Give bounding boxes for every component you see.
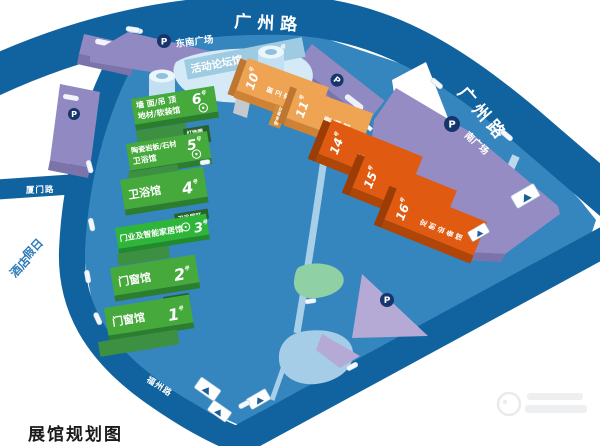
map-title: 展馆规划图 (28, 424, 123, 445)
parking-icon: P (444, 116, 460, 132)
road-label-guangzhou-top: 广州路 (234, 11, 304, 36)
site-map: 广州路 广州路 厦门路 福州路 假日 酒店 P P 东南广场 (0, 0, 600, 446)
svg-text:P: P (384, 296, 391, 306)
svg-text:P: P (448, 120, 455, 131)
parking-icon: P (157, 34, 171, 48)
svg-text:P: P (71, 110, 77, 119)
hotel-label: 假日 酒店 (7, 236, 46, 280)
watermark-logo (498, 393, 587, 415)
road-label-xiamen: 厦门路 (26, 184, 55, 196)
parking-icon: P (68, 108, 80, 120)
exhibition-map-page: 广州路 广州路 厦门路 福州路 假日 酒店 P P 东南广场 (0, 0, 600, 446)
svg-text:P: P (161, 38, 168, 48)
parking-icon: P (380, 293, 394, 307)
